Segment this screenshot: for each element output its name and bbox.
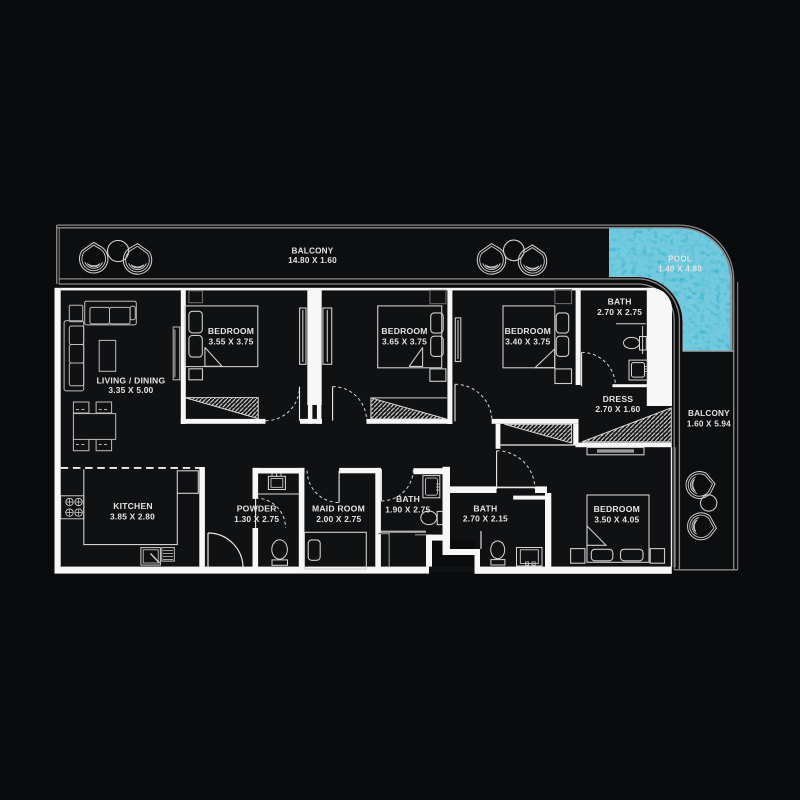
svg-text:POOL: POOL	[668, 255, 692, 264]
svg-text:1.60 X 5.94: 1.60 X 5.94	[687, 419, 731, 428]
svg-text:3.40 X 3.75: 3.40 X 3.75	[505, 337, 550, 347]
svg-text:BEDROOM: BEDROOM	[381, 326, 427, 336]
svg-text:3.65 X 3.75: 3.65 X 3.75	[382, 337, 427, 347]
svg-text:1.40 X 4.80: 1.40 X 4.80	[658, 265, 702, 274]
svg-text:MAID ROOM: MAID ROOM	[312, 504, 365, 514]
svg-text:BATH: BATH	[608, 297, 632, 307]
svg-text:BATH: BATH	[396, 494, 420, 504]
svg-text:DRESS: DRESS	[603, 394, 634, 404]
svg-text:2.70 X 2.15: 2.70 X 2.15	[463, 514, 508, 524]
svg-text:2.70 X 1.60: 2.70 X 1.60	[595, 404, 640, 414]
svg-text:POWDER: POWDER	[237, 504, 277, 514]
svg-text:2.00 X 2.75: 2.00 X 2.75	[316, 514, 361, 524]
svg-text:3.55 X 3.75: 3.55 X 3.75	[208, 337, 253, 347]
svg-text:3.35 X 5.00: 3.35 X 5.00	[108, 385, 153, 395]
svg-text:BALCONY: BALCONY	[292, 246, 334, 255]
svg-text:KITCHEN: KITCHEN	[113, 501, 153, 511]
svg-text:BEDROOM: BEDROOM	[594, 504, 640, 514]
svg-text:1.30 X 2.75: 1.30 X 2.75	[234, 514, 279, 524]
svg-text:BEDROOM: BEDROOM	[505, 326, 551, 336]
svg-text:1.90 X 2.75: 1.90 X 2.75	[385, 504, 430, 514]
svg-text:BALCONY: BALCONY	[688, 409, 730, 418]
svg-text:BATH: BATH	[473, 503, 497, 513]
svg-text:3.50 X 4.05: 3.50 X 4.05	[594, 515, 639, 525]
svg-text:3.85 X 2.80: 3.85 X 2.80	[110, 511, 155, 521]
svg-text:BEDROOM: BEDROOM	[208, 326, 254, 336]
svg-text:2.70 X 2.75: 2.70 X 2.75	[597, 307, 642, 317]
svg-text:14.80 X 1.60: 14.80 X 1.60	[288, 256, 337, 265]
svg-text:LIVING / DINING: LIVING / DINING	[96, 375, 165, 385]
